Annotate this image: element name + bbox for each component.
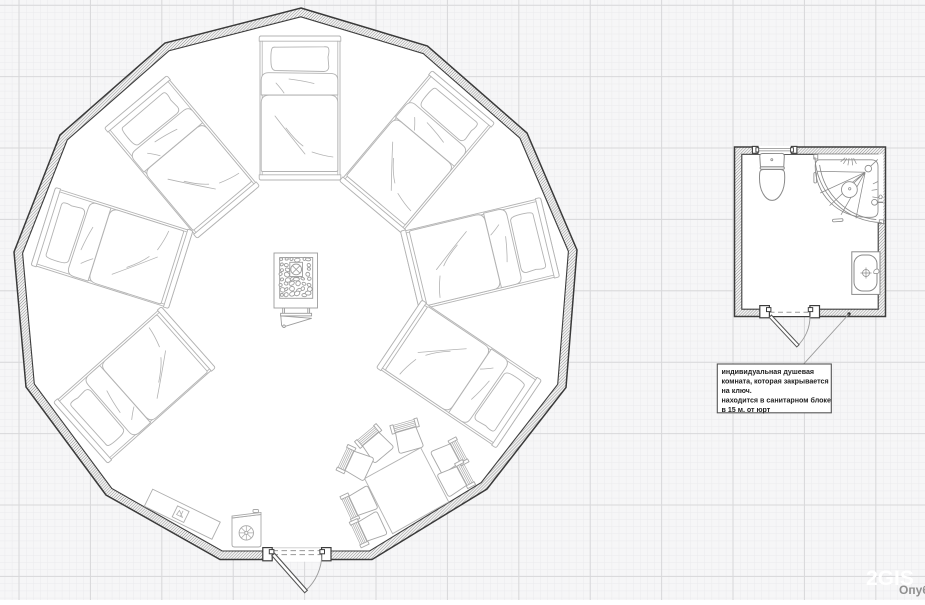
svg-text:на ключ.: на ключ.: [722, 387, 752, 395]
svg-text:Опуб: Опуб: [899, 583, 925, 597]
svg-text:в 15 м. от юрт: в 15 м. от юрт: [722, 406, 771, 414]
svg-text:комната, которая закрывается: комната, которая закрывается: [722, 377, 829, 385]
svg-text:находится в санитарном блоке: находится в санитарном блоке: [722, 396, 831, 404]
svg-text:индивидуальная душевая: индивидуальная душевая: [722, 368, 815, 376]
